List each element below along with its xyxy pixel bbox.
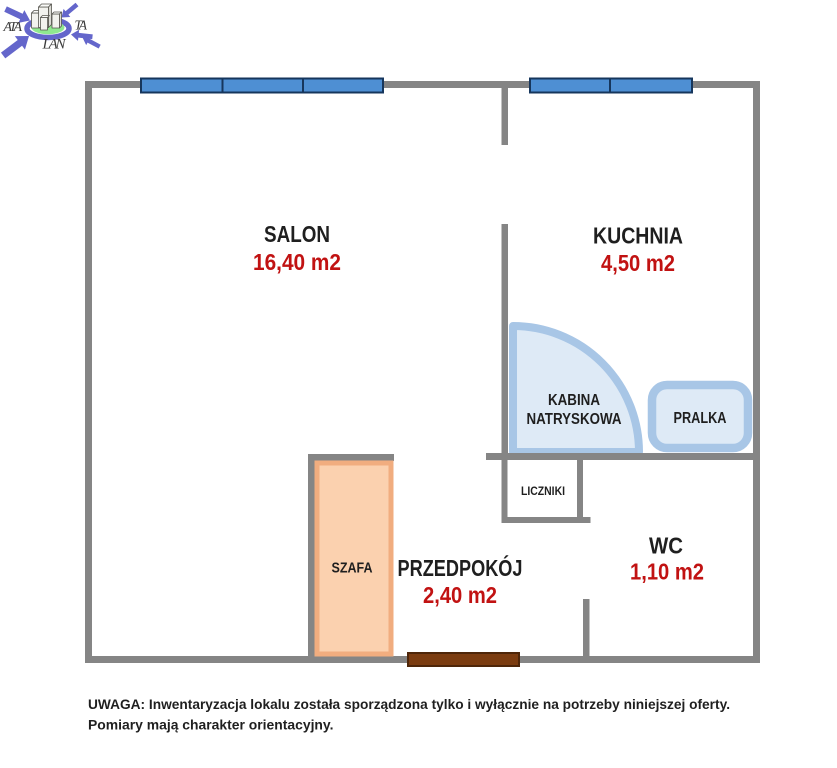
svg-text:LICZNIKI: LICZNIKI — [521, 484, 565, 498]
svg-text:PRALKA: PRALKA — [674, 410, 727, 427]
svg-text:NATRYSKOWA: NATRYSKOWA — [527, 411, 622, 428]
svg-text:2,40 m2: 2,40 m2 — [423, 582, 497, 608]
svg-text:ATA: ATA — [3, 20, 23, 35]
svg-text:WC: WC — [649, 533, 683, 559]
svg-text:SZAFA: SZAFA — [332, 560, 373, 577]
svg-text:16,40 m2: 16,40 m2 — [253, 249, 341, 275]
svg-text:LAN: LAN — [42, 37, 67, 53]
svg-text:1,10 m2: 1,10 m2 — [630, 559, 704, 585]
svg-text:TA: TA — [75, 18, 88, 33]
svg-text:KUCHNIA: KUCHNIA — [593, 223, 683, 249]
svg-text:UWAGA: Inwentaryzacja lokalu z: UWAGA: Inwentaryzacja lokalu została spo… — [88, 697, 730, 712]
svg-text:SALON: SALON — [264, 221, 330, 247]
svg-text:PRZEDPOKÓJ: PRZEDPOKÓJ — [398, 554, 523, 581]
svg-text:KABINA: KABINA — [548, 392, 600, 409]
svg-text:4,50 m2: 4,50 m2 — [601, 250, 675, 276]
svg-text:Pomiary mają charakter orienta: Pomiary mają charakter orientacyjny. — [88, 718, 334, 733]
